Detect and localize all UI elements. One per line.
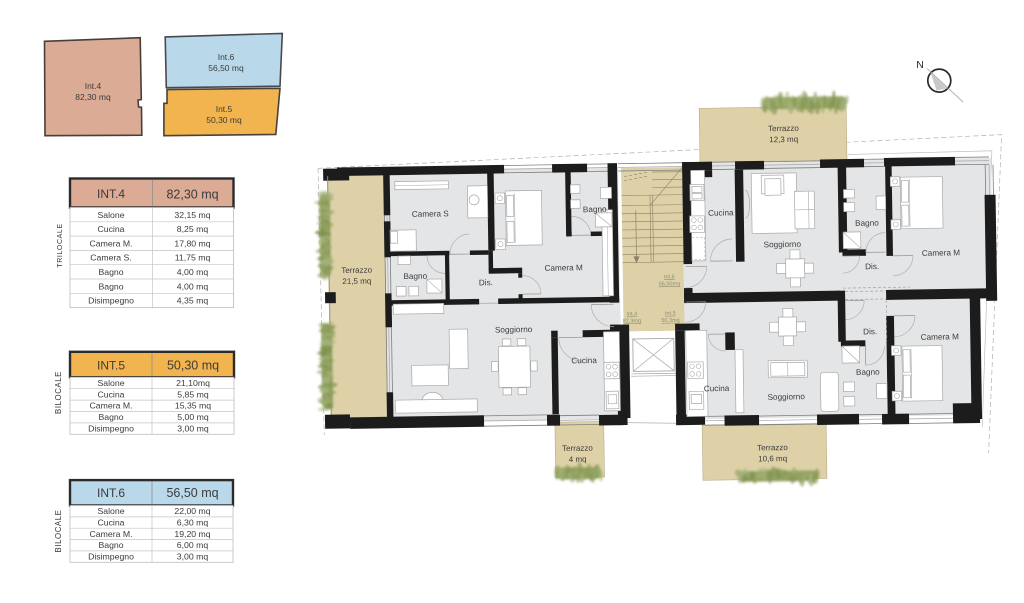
svg-text:INT.4: INT.4 xyxy=(97,187,125,201)
svg-text:Bagno: Bagno xyxy=(98,412,123,422)
svg-text:4,00 mq: 4,00 mq xyxy=(177,281,209,291)
svg-text:Cucina: Cucina xyxy=(97,389,124,399)
svg-text:Terrazzo: Terrazzo xyxy=(768,124,799,133)
svg-text:TRILOCALE: TRILOCALE xyxy=(57,223,64,267)
svg-text:Cucina: Cucina xyxy=(571,356,597,365)
svg-text:82,3mq: 82,3mq xyxy=(623,318,641,324)
svg-text:Camera M: Camera M xyxy=(921,332,960,342)
svg-text:Bagno: Bagno xyxy=(583,205,607,214)
svg-text:Dis.: Dis. xyxy=(865,262,879,271)
svg-text:15,35 mq: 15,35 mq xyxy=(175,401,211,411)
svg-text:Soggiorno: Soggiorno xyxy=(495,325,533,335)
svg-text:Cucina: Cucina xyxy=(97,518,124,528)
svg-text:3,00 mq: 3,00 mq xyxy=(177,424,209,434)
svg-text:Camera M.: Camera M. xyxy=(90,529,133,539)
svg-text:Disimpegno: Disimpegno xyxy=(88,552,134,562)
svg-text:Bagno: Bagno xyxy=(98,540,123,550)
svg-text:5,00 mq: 5,00 mq xyxy=(177,412,209,422)
svg-text:6,30 mq: 6,30 mq xyxy=(177,518,209,528)
svg-text:5,85 mq: 5,85 mq xyxy=(177,389,209,399)
svg-text:Bagno: Bagno xyxy=(856,368,880,377)
svg-text:Disimpegno: Disimpegno xyxy=(88,296,134,306)
svg-text:Camera S.: Camera S. xyxy=(90,253,132,263)
svg-text:21,10mq: 21,10mq xyxy=(176,378,210,388)
svg-text:Soggiorno: Soggiorno xyxy=(767,392,805,402)
svg-text:56,50 mq: 56,50 mq xyxy=(166,486,218,500)
svg-text:8,25 mq: 8,25 mq xyxy=(177,224,209,234)
svg-text:N: N xyxy=(916,59,924,71)
svg-text:19,20 mq: 19,20 mq xyxy=(174,529,210,539)
svg-text:Cucina: Cucina xyxy=(708,208,734,217)
svg-text:50,3mq: 50,3mq xyxy=(661,318,679,324)
svg-text:3,00 mq: 3,00 mq xyxy=(177,552,209,562)
svg-text:Camera S: Camera S xyxy=(412,209,450,219)
svg-text:21,5 mq: 21,5 mq xyxy=(342,277,371,286)
svg-text:56,50mq: 56,50mq xyxy=(659,281,680,287)
svg-text:Terrazzo: Terrazzo xyxy=(341,266,372,275)
svg-text:50,30 mq: 50,30 mq xyxy=(206,115,242,125)
svg-text:32,15 mq: 32,15 mq xyxy=(174,210,210,220)
svg-text:Salone: Salone xyxy=(97,378,124,388)
svg-text:Bagno: Bagno xyxy=(403,272,427,281)
svg-text:Camera M: Camera M xyxy=(544,263,583,273)
svg-text:Camera M.: Camera M. xyxy=(90,238,133,248)
svg-text:Camera M: Camera M xyxy=(922,248,961,258)
svg-text:6,00 mq: 6,00 mq xyxy=(177,540,209,550)
svg-text:Terrazzo: Terrazzo xyxy=(562,444,593,453)
svg-text:12,3 mq: 12,3 mq xyxy=(769,135,798,144)
svg-text:50,30 mq: 50,30 mq xyxy=(167,359,219,373)
svg-text:Soggiorno: Soggiorno xyxy=(764,240,802,250)
svg-text:Bagno: Bagno xyxy=(98,281,123,291)
svg-text:Int.6: Int.6 xyxy=(664,274,675,280)
svg-text:Camera M.: Camera M. xyxy=(90,401,133,411)
svg-text:4,00 mq: 4,00 mq xyxy=(177,267,209,277)
svg-text:Salone: Salone xyxy=(97,210,124,220)
svg-text:82,30 mq: 82,30 mq xyxy=(166,187,218,201)
svg-text:Int.5: Int.5 xyxy=(216,104,233,114)
svg-text:Bagno: Bagno xyxy=(855,219,879,228)
svg-text:56,50 mq: 56,50 mq xyxy=(208,63,244,73)
svg-text:Terrazzo: Terrazzo xyxy=(757,443,788,452)
svg-text:4,35 mq: 4,35 mq xyxy=(177,296,209,306)
svg-text:10,6 mq: 10,6 mq xyxy=(758,454,787,463)
svg-text:Bagno: Bagno xyxy=(98,267,123,277)
svg-text:Int.4: Int.4 xyxy=(85,81,102,91)
svg-text:BILOCALE: BILOCALE xyxy=(54,510,63,553)
svg-text:INT.6: INT.6 xyxy=(97,486,125,500)
svg-text:17,80 mq: 17,80 mq xyxy=(174,238,210,248)
svg-text:11,75 mq: 11,75 mq xyxy=(175,253,211,263)
svg-text:INT.5: INT.5 xyxy=(97,358,125,372)
svg-text:Dis.: Dis. xyxy=(863,327,877,336)
svg-text:Cucina: Cucina xyxy=(704,384,730,393)
svg-text:Disimpegno: Disimpegno xyxy=(88,424,134,434)
svg-text:Int.5: Int.5 xyxy=(665,311,676,317)
svg-text:BILOCALE: BILOCALE xyxy=(54,371,63,414)
svg-text:Int.6: Int.6 xyxy=(218,52,235,62)
svg-text:4 mq: 4 mq xyxy=(569,455,587,464)
svg-text:Salone: Salone xyxy=(97,506,124,516)
svg-text:Dis.: Dis. xyxy=(479,278,493,287)
svg-text:82,30 mq: 82,30 mq xyxy=(75,92,111,102)
svg-text:22,00 mq: 22,00 mq xyxy=(174,506,210,516)
svg-text:Cucina: Cucina xyxy=(97,224,124,234)
svg-text:Int.4: Int.4 xyxy=(626,311,637,317)
